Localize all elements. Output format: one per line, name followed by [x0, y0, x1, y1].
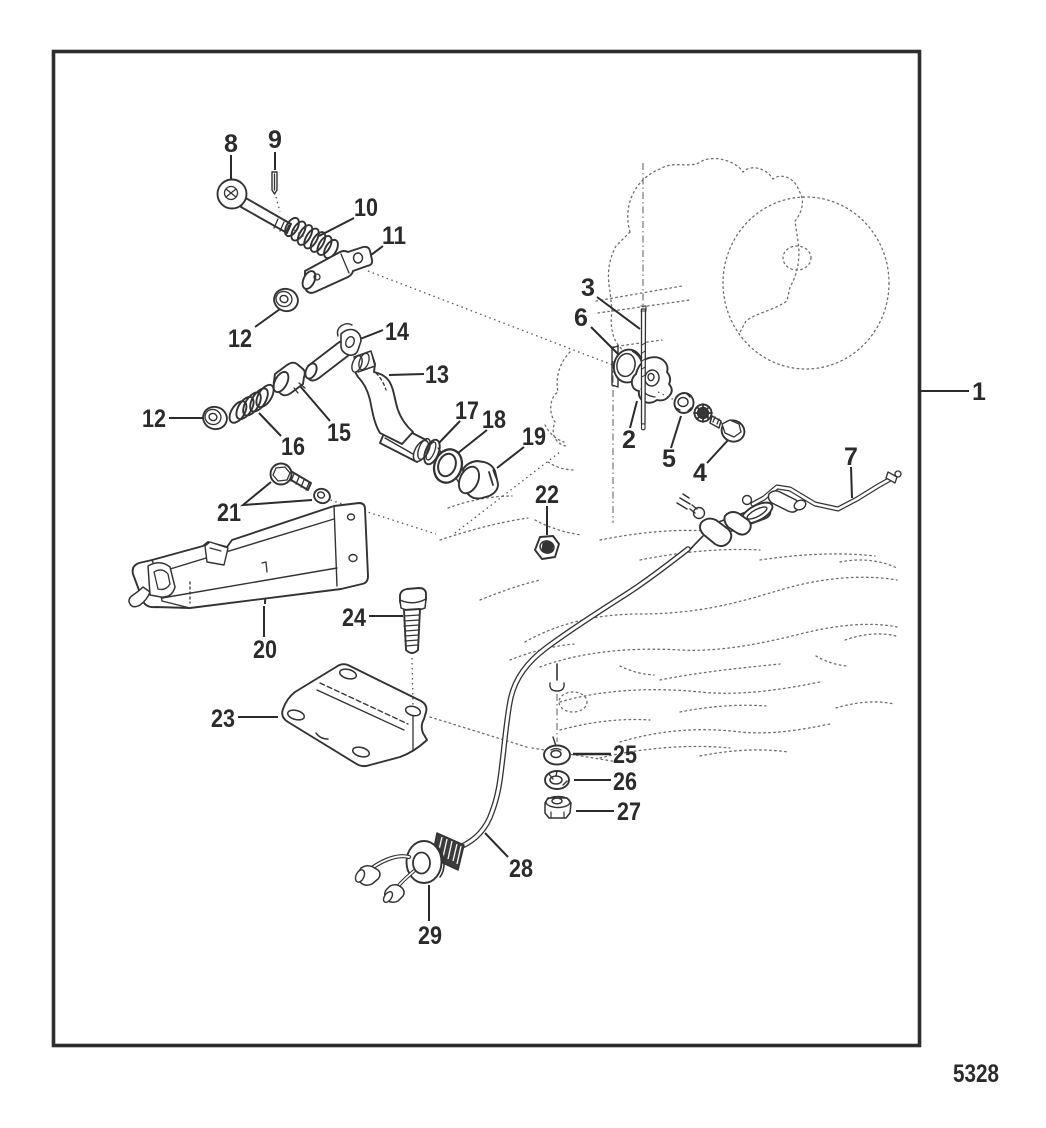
svg-text:12: 12 — [142, 405, 166, 433]
svg-text:29: 29 — [418, 922, 442, 950]
svg-text:5: 5 — [662, 445, 676, 473]
svg-text:2: 2 — [622, 426, 636, 454]
svg-text:6: 6 — [574, 304, 588, 332]
svg-text:1: 1 — [972, 378, 986, 406]
svg-text:20: 20 — [253, 636, 277, 664]
svg-text:14: 14 — [385, 318, 409, 346]
svg-text:7: 7 — [844, 443, 858, 471]
svg-text:12: 12 — [228, 325, 252, 353]
svg-text:17: 17 — [455, 397, 479, 425]
svg-text:3: 3 — [581, 274, 595, 302]
svg-text:9: 9 — [268, 126, 282, 154]
svg-text:27: 27 — [617, 798, 641, 826]
svg-text:16: 16 — [281, 433, 305, 461]
svg-text:28: 28 — [509, 855, 533, 883]
svg-text:15: 15 — [327, 419, 351, 447]
svg-text:24: 24 — [342, 604, 366, 632]
svg-text:10: 10 — [354, 194, 378, 222]
svg-text:25: 25 — [613, 741, 637, 769]
svg-text:18: 18 — [482, 406, 506, 434]
svg-text:22: 22 — [535, 481, 559, 509]
svg-text:5328: 5328 — [953, 1060, 999, 1088]
svg-text:23: 23 — [211, 705, 235, 733]
svg-text:26: 26 — [613, 768, 637, 796]
svg-text:11: 11 — [382, 222, 406, 250]
svg-text:19: 19 — [522, 423, 546, 451]
svg-text:4: 4 — [693, 459, 707, 487]
svg-text:13: 13 — [425, 361, 449, 389]
svg-text:8: 8 — [224, 130, 238, 158]
svg-text:21: 21 — [217, 499, 241, 527]
